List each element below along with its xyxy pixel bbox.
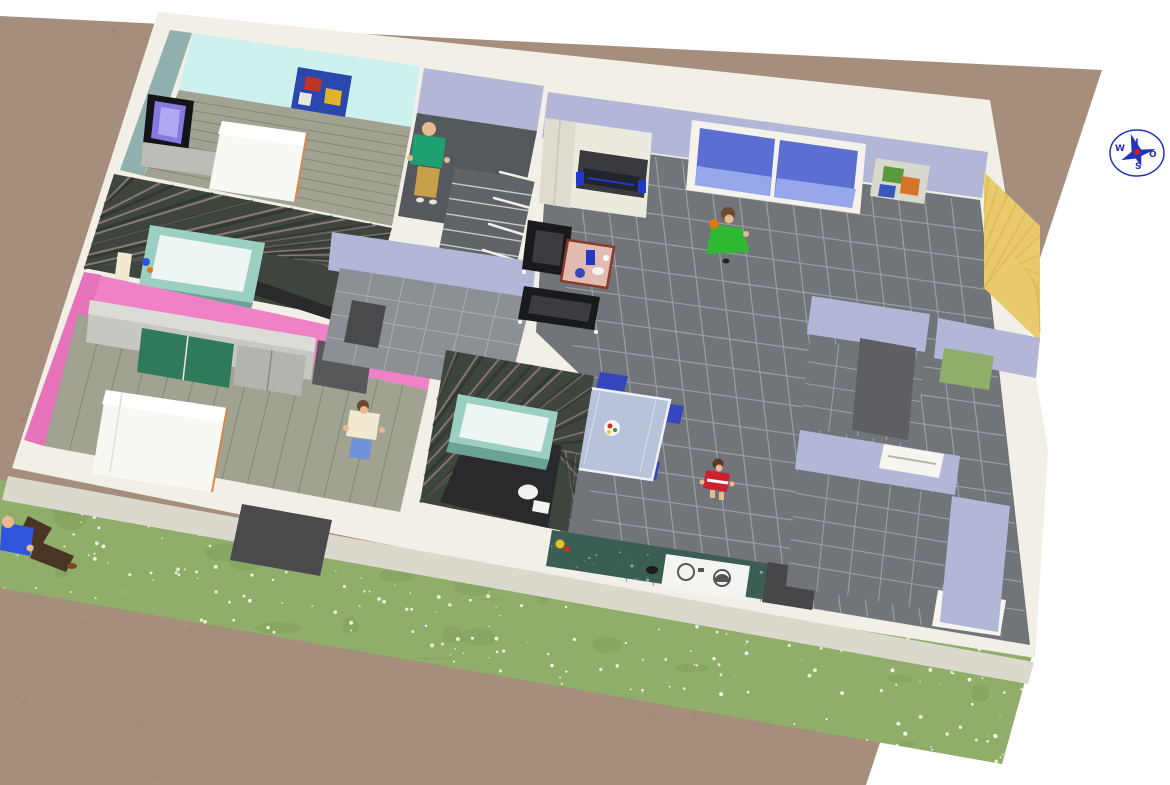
dark-panel [852, 338, 916, 440]
wall-poster [291, 67, 352, 117]
bed-double [92, 390, 227, 492]
hifi-cabinet [539, 118, 652, 218]
small-figure [142, 258, 150, 266]
compass-o: O [1149, 150, 1157, 160]
compass-w: W [1115, 144, 1125, 154]
toilet [518, 485, 538, 500]
toy [556, 540, 565, 549]
bed-double [209, 121, 307, 202]
compass-n: N [1131, 138, 1139, 148]
render-viewport: W N O S [0, 0, 1170, 785]
compass-s: S [1135, 162, 1141, 172]
wall-poster-2 [870, 158, 930, 204]
bathroom-lower [420, 350, 594, 532]
coffee-table [561, 240, 614, 288]
home-3d-view-canvas[interactable]: W N O S [0, 0, 1170, 785]
compass-rose: W N O S [1110, 128, 1164, 176]
